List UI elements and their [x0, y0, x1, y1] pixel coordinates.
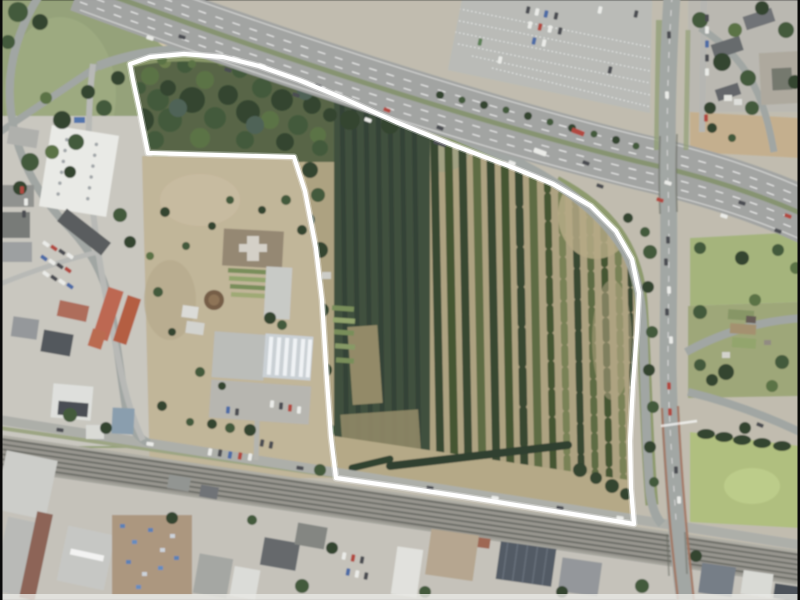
bottom-haze-strip: [0, 594, 800, 600]
aerial-photo: [0, 0, 800, 600]
haze: [0, 0, 800, 600]
left-frame-bar: [0, 0, 3, 600]
screenshot-root: [0, 0, 800, 600]
photo-content: [0, 0, 800, 600]
